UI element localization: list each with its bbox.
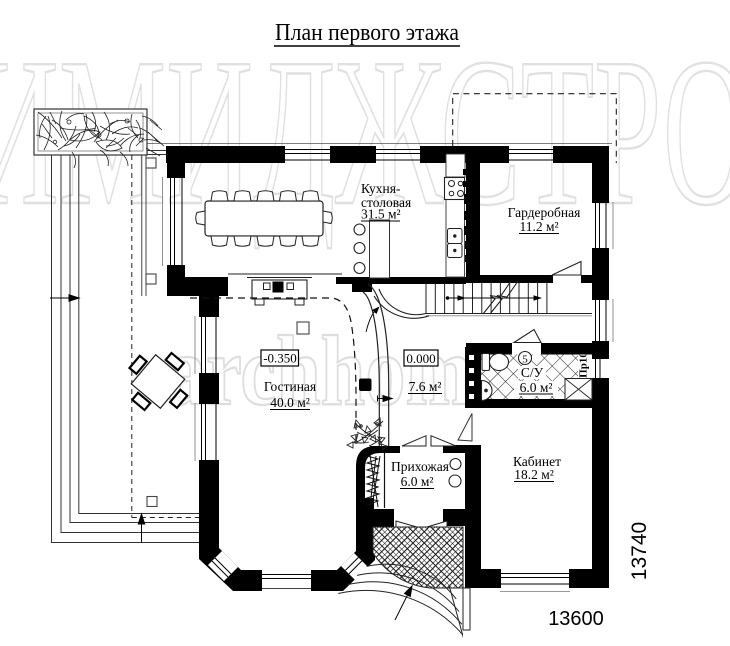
svg-text:archhome: archhome (166, 315, 508, 426)
svg-text:13740: 13740 (628, 522, 651, 580)
svg-text:5: 5 (522, 353, 528, 365)
svg-text:План первого этажа: План первого этажа (275, 20, 459, 46)
svg-text:-0.350: -0.350 (263, 351, 297, 366)
svg-text:0.000: 0.000 (406, 351, 435, 366)
svg-text:31.5 м²: 31.5 м² (361, 207, 401, 222)
svg-text:6.0 м²: 6.0 м² (520, 380, 553, 395)
svg-text:18.2 м²: 18.2 м² (514, 467, 554, 482)
svg-text:Прихожая: Прихожая (391, 459, 449, 474)
svg-text:13600: 13600 (548, 608, 604, 630)
svg-text:7.6 м²: 7.6 м² (409, 379, 442, 394)
svg-text:40.0 м²: 40.0 м² (270, 395, 310, 410)
svg-text:Гардеробная: Гардеробная (508, 205, 581, 220)
svg-text:Кухня-: Кухня- (361, 181, 401, 196)
svg-text:11.2 м²: 11.2 м² (519, 219, 558, 234)
svg-text:С/У: С/У (521, 365, 544, 380)
svg-text:Пр10: Пр10 (578, 352, 590, 378)
svg-text:6.0 м²: 6.0 м² (401, 474, 434, 489)
svg-text:Гостиная: Гостиная (264, 379, 316, 394)
